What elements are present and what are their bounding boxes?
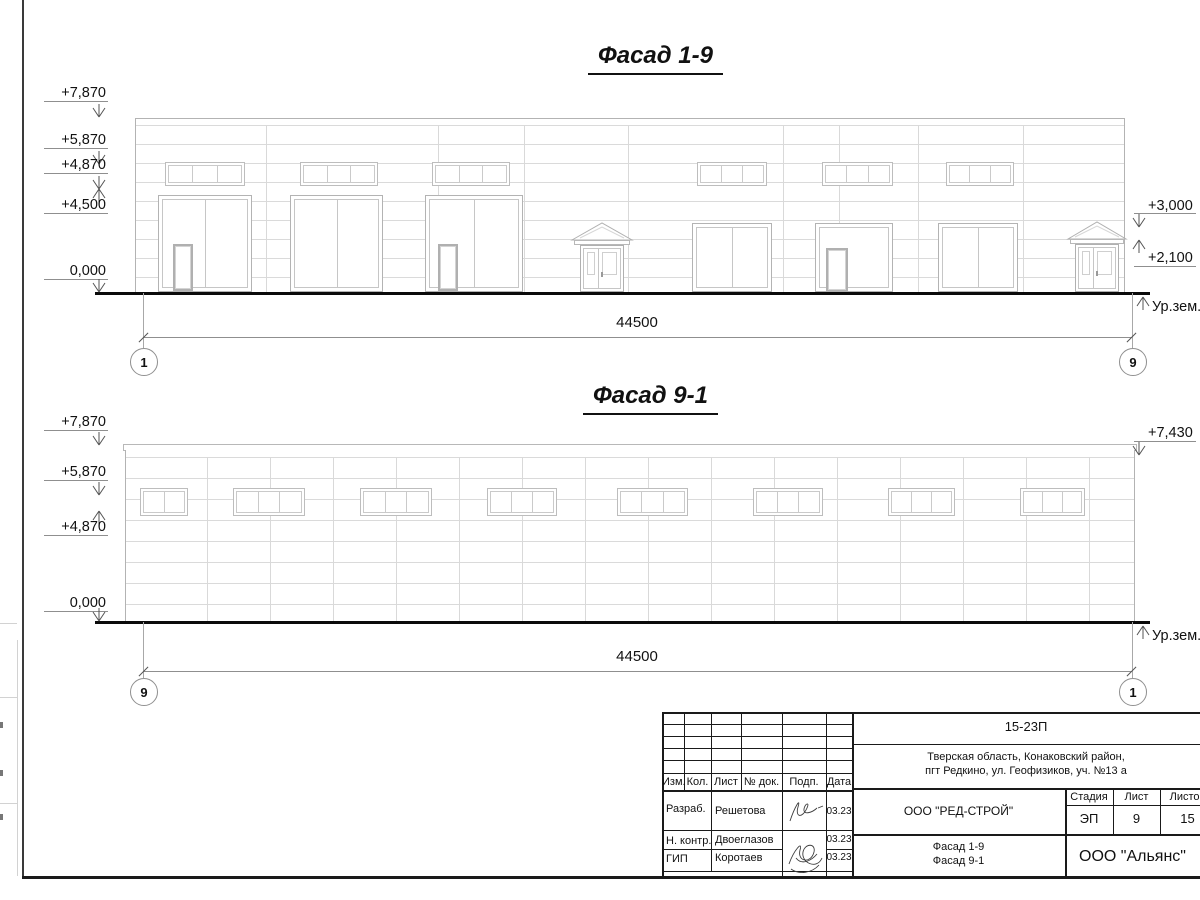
window-pane (743, 166, 763, 182)
panel-joint-line (1026, 457, 1027, 622)
gate-opening (158, 195, 252, 292)
panel-joint-line (207, 457, 208, 622)
extension-line (1132, 293, 1133, 348)
window-pane (991, 166, 1010, 182)
elevation-label: +7,870 (40, 85, 106, 102)
window-frame (825, 165, 890, 183)
panel-joint-line (918, 125, 919, 294)
elevation-label: +7,430 (1148, 425, 1193, 442)
window-strip (233, 488, 305, 516)
window-strip (822, 162, 893, 186)
window-pane (386, 492, 408, 512)
elevation-arrow-down-icon (90, 279, 108, 293)
gate-leaf-divider (978, 228, 979, 287)
panel-joint-line (266, 125, 267, 294)
wicket-door-panel (828, 250, 846, 290)
title-block-border (662, 712, 1200, 714)
window-pane (237, 492, 259, 512)
window-frame (143, 491, 185, 513)
window-pane (847, 166, 868, 182)
col-header-doc: № док. (741, 776, 782, 789)
entrance-door (1075, 244, 1119, 292)
stage-value: ЭП (1065, 812, 1113, 827)
elevation-label: +4,870 (40, 519, 106, 536)
elevation-underline (44, 213, 108, 214)
window-strip (140, 488, 188, 516)
elevation-label: +5,870 (40, 464, 106, 481)
window-pane (950, 166, 970, 182)
facade-9-1-title: Фасад 9-1 (583, 382, 718, 415)
window-pane (512, 492, 533, 512)
side-stamp-text-fragment (0, 814, 3, 820)
window-pane (193, 166, 217, 182)
window-pane (169, 166, 193, 182)
panel-joint-line (524, 125, 525, 294)
window-frame (620, 491, 685, 513)
frame-bottom-line (22, 876, 1200, 879)
axis-label: 1 (140, 355, 147, 370)
window-pane (483, 166, 506, 182)
dimension-line (143, 671, 1132, 672)
window-strip (617, 488, 688, 516)
designer-org: ООО "РЕД-СТРОЙ" (852, 805, 1065, 819)
col-header-izm: Изм. (662, 776, 684, 789)
gate-opening (290, 195, 383, 292)
elevation-arrow-down-icon (90, 482, 108, 496)
panel-joint-line (711, 457, 712, 622)
elevation-arrow-down-icon (1130, 442, 1148, 456)
facade-wall (125, 450, 1135, 622)
window-pane (436, 166, 460, 182)
window-pane (533, 492, 553, 512)
window-strip (165, 162, 245, 186)
side-stamp-line (17, 640, 18, 876)
panel-joint-line (585, 457, 586, 622)
drawing-sheet: Фасад 1-9 (0, 0, 1200, 900)
window-pane (664, 492, 684, 512)
title-block-line (1065, 805, 1200, 806)
elevation-label: +4,870 (40, 157, 106, 174)
elevation-label: +7,870 (40, 414, 106, 431)
wicket-door-panel (175, 246, 191, 289)
gate-leaf-divider (732, 228, 733, 287)
gate-leaf-divider (205, 200, 206, 287)
panel-joint-line (459, 457, 460, 622)
project-address-line2: пгт Редкино, ул. Геофизиков, уч. №13 а (852, 765, 1200, 778)
elevation-label: +4,500 (40, 197, 106, 214)
window-pane (259, 492, 281, 512)
doc-number: 15-23П (852, 720, 1200, 735)
title-block-line (852, 744, 1200, 745)
row-role: Разраб. (666, 803, 706, 816)
elevation-underline (1134, 266, 1196, 267)
panel-joint-line (333, 457, 334, 622)
panel-joint-line (837, 457, 838, 622)
stage-header: Стадия (1065, 791, 1113, 804)
frame-left-line (22, 0, 24, 879)
title-block-line (852, 834, 1200, 836)
gate-opening (425, 195, 523, 292)
gate-leaf-divider (337, 200, 338, 287)
window-pane (757, 492, 778, 512)
sheet-name-line2: Фасад 9-1 (852, 855, 1065, 868)
window-pane (364, 492, 386, 512)
wicket-door-panel (440, 246, 456, 289)
elevation-underline (44, 101, 108, 102)
axis-label: 9 (140, 685, 147, 700)
sheets-header: Листов (1160, 791, 1200, 804)
window-pane (701, 166, 722, 182)
panel-joint-line (648, 457, 649, 622)
window-frame (1023, 491, 1082, 513)
window-pane (460, 166, 484, 182)
project-address-line1: Тверская область, Конаковский район, (852, 751, 1200, 764)
window-strip (697, 162, 767, 186)
row-date: 03.23 (826, 806, 852, 818)
row-name: Решетова (715, 805, 765, 818)
entrance-door (580, 245, 624, 292)
gate-leaf-frame (696, 227, 768, 288)
title-block-line (662, 849, 782, 850)
window-pane (407, 492, 428, 512)
row-name: Двоеглазов (715, 834, 773, 847)
window-pane (144, 492, 165, 512)
window-strip (432, 162, 510, 186)
window-strip (753, 488, 823, 516)
row-role: Н. контр. (666, 835, 711, 848)
elevation-underline (44, 535, 108, 536)
window-frame (700, 165, 764, 183)
gate-opening (692, 223, 772, 292)
elevation-label: +2,100 (1148, 250, 1193, 267)
col-header-kol: Кол. (684, 776, 711, 789)
entrance-porch (1066, 219, 1128, 293)
window-pane (328, 166, 352, 182)
window-pane (280, 492, 301, 512)
panel-joint-line (783, 125, 784, 294)
window-pane (932, 492, 951, 512)
row-date: 03.23 (826, 852, 852, 864)
window-pane (1063, 492, 1081, 512)
window-pane (869, 166, 889, 182)
panel-lines (126, 457, 1134, 622)
window-frame (236, 491, 302, 513)
gate-leaf-divider (474, 200, 475, 287)
title-block-line (662, 773, 852, 774)
window-pane (1024, 492, 1043, 512)
panel-joint-line (522, 457, 523, 622)
elevation-label: +5,870 (40, 132, 106, 149)
side-stamp-line (0, 803, 17, 804)
panel-joint-line (963, 457, 964, 622)
panel-joint-line (774, 457, 775, 622)
window-pane (621, 492, 642, 512)
side-stamp-text-fragment (0, 770, 3, 776)
gate-opening (815, 223, 893, 292)
window-pane (165, 492, 185, 512)
title-block-line (662, 760, 852, 761)
window-pane (642, 492, 663, 512)
elevation-underline (44, 148, 108, 149)
axis-bubble-9: 9 (1119, 348, 1147, 376)
window-frame (490, 491, 554, 513)
window-pane (778, 492, 799, 512)
window-strip (946, 162, 1014, 186)
elevation-arrow-down-icon (1130, 214, 1148, 228)
ground-line (95, 292, 1150, 295)
title-block-line (662, 830, 852, 831)
gate-opening (938, 223, 1018, 292)
elevation-arrow-down-icon (90, 608, 108, 622)
window-pane (722, 166, 743, 182)
elevation-arrow-up-icon (1130, 239, 1148, 253)
window-pane (351, 166, 374, 182)
wicket-door (438, 244, 458, 291)
elevation-underline (44, 480, 108, 481)
dimension-value: 44500 (587, 314, 687, 331)
title-block-line (852, 788, 1200, 790)
side-stamp-line (0, 697, 17, 698)
wicket-door (826, 248, 848, 292)
col-header-data: Дата (826, 776, 852, 789)
wicket-door (173, 244, 193, 291)
axis-label: 1 (1129, 685, 1136, 700)
panel-joint-line (900, 457, 901, 622)
axis-bubble-1: 1 (1119, 678, 1147, 706)
sheets-total: 15 (1160, 812, 1200, 827)
elevation-arrow-down-icon (90, 432, 108, 446)
panel-joint-line (1023, 125, 1024, 294)
panel-joint-line (396, 457, 397, 622)
sheet-name-line1: Фасад 1-9 (852, 841, 1065, 854)
ground-line (95, 621, 1150, 624)
entrance-porch (570, 220, 634, 293)
col-header-podp: Подп. (782, 776, 826, 789)
window-pane (912, 492, 932, 512)
window-pane (970, 166, 990, 182)
ground-level-label: Ур.зем. (1152, 299, 1200, 316)
panel-joint-line (1089, 457, 1090, 622)
dimension-value: 44500 (587, 648, 687, 665)
window-frame (891, 491, 952, 513)
window-pane (799, 492, 819, 512)
window-pane (491, 492, 512, 512)
elevation-arrow-up-icon (1134, 625, 1152, 639)
window-pane (218, 166, 241, 182)
title-block-line (662, 736, 852, 737)
elevation-arrow-up-icon (1134, 296, 1152, 310)
title-block-line (662, 790, 852, 792)
window-frame (303, 165, 375, 183)
title-block-line (826, 849, 852, 850)
axis-label: 9 (1129, 355, 1136, 370)
row-name: Коротаев (715, 852, 763, 865)
window-strip (360, 488, 432, 516)
ground-level-label: Ур.зем. (1152, 628, 1200, 645)
pediment-icon (1066, 219, 1128, 241)
pediment-icon (570, 220, 634, 242)
customer-org: ООО "Альянс" (1065, 848, 1200, 866)
window-strip (487, 488, 557, 516)
window-strip (300, 162, 378, 186)
window-frame (168, 165, 242, 183)
sheet-number: 9 (1113, 812, 1160, 827)
window-pane (892, 492, 912, 512)
axis-bubble-9: 9 (130, 678, 158, 706)
elevation-underline (44, 430, 108, 431)
window-strip (1020, 488, 1085, 516)
window-frame (756, 491, 820, 513)
side-stamp-line (0, 623, 17, 624)
panel-joint-line (270, 457, 271, 622)
window-frame (949, 165, 1011, 183)
title-block-line (662, 724, 852, 725)
dimension-line (143, 337, 1132, 338)
side-stamp-text-fragment (0, 722, 3, 728)
elevation-arrow-down-icon (90, 104, 108, 118)
window-pane (304, 166, 328, 182)
gate-leaf-frame (942, 227, 1014, 288)
axis-bubble-1: 1 (130, 348, 158, 376)
facade-1-9-title: Фасад 1-9 (588, 42, 723, 75)
window-frame (435, 165, 507, 183)
col-header-list: Лист (711, 776, 741, 789)
extension-line (143, 293, 144, 348)
elevation-underline (44, 173, 108, 174)
signature-icon (784, 836, 826, 876)
window-pane (1043, 492, 1062, 512)
row-role: ГИП (666, 853, 688, 866)
signature-icon (786, 794, 824, 827)
row-date: 03.23 (826, 834, 852, 846)
window-strip (888, 488, 955, 516)
sheet-header: Лист (1113, 791, 1160, 804)
window-frame (363, 491, 429, 513)
title-block-line (662, 748, 852, 749)
elevation-label: 0,000 (40, 263, 106, 280)
window-pane (826, 166, 847, 182)
gate-leaf-frame (294, 199, 379, 288)
